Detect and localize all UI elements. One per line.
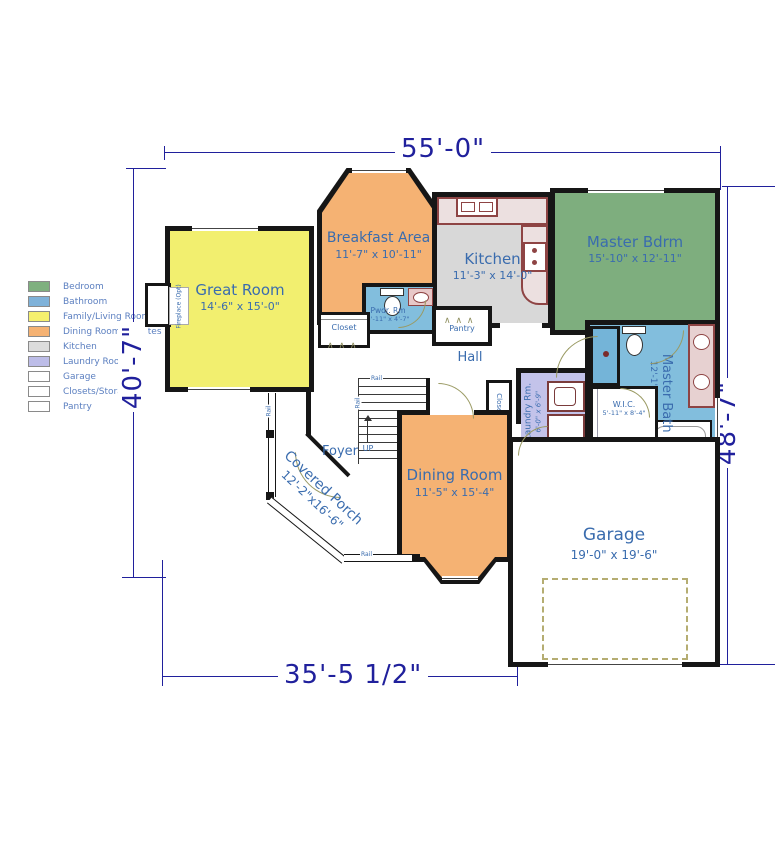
pantry: Pantry — [432, 306, 492, 346]
great-room-name: Great Room — [170, 281, 310, 299]
stairs-up-arrow — [367, 420, 368, 442]
opening — [500, 323, 542, 329]
stairs-up-arrowhead — [364, 415, 372, 421]
sink-basin — [693, 374, 710, 390]
sink-basin — [461, 202, 475, 212]
rail-label: Rail — [267, 404, 273, 417]
shower-head — [603, 351, 609, 357]
dim-tick — [162, 560, 163, 686]
foyer-label: Foyer — [308, 444, 372, 460]
legend-swatch — [28, 371, 50, 382]
breakfast-name: Breakfast Area — [317, 230, 440, 247]
legend-label: Bedroom — [63, 282, 104, 292]
porch-rail — [344, 554, 420, 562]
closet-rod-icon — [327, 333, 357, 352]
dining-name: Dining Room — [397, 466, 512, 484]
legend-swatch — [28, 311, 50, 322]
closet-hall: Closet — [318, 312, 370, 348]
toilet-icon — [622, 326, 646, 334]
toilet-icon — [626, 334, 643, 356]
kitchen-sink — [456, 197, 498, 217]
rail-label: Rail — [356, 396, 362, 409]
dim-tick — [720, 146, 721, 190]
legend-label: Family/Living Room — [63, 312, 150, 322]
master-bdrm-name: Master Bdrm — [550, 233, 720, 251]
window — [352, 168, 406, 173]
legend-swatch — [28, 341, 50, 352]
sink-basin — [693, 334, 710, 350]
shelf-line — [321, 319, 367, 320]
master-bdrm-dims: 15'-10" x 12'-11" — [550, 252, 720, 265]
pantry-label: Pantry — [436, 324, 488, 334]
dim-left-label: 40'-7" — [118, 322, 148, 412]
hall-label: Hall — [430, 350, 510, 366]
kitchen-name: Kitchen — [430, 250, 555, 268]
legend-swatch — [28, 281, 50, 292]
closet-label: Closet — [321, 323, 367, 333]
legend-swatch — [28, 296, 50, 307]
dim-tick — [126, 168, 166, 169]
toilet-icon — [380, 288, 404, 296]
legend-swatch — [28, 356, 50, 367]
window — [715, 398, 720, 442]
kitchen-dims: 11'-3" x 14'-0" — [430, 269, 555, 282]
legend-swatch — [28, 386, 50, 397]
window — [188, 387, 250, 392]
door-arc — [556, 336, 598, 378]
dim-tick — [122, 577, 166, 578]
window — [192, 226, 258, 231]
dim-tick — [164, 146, 165, 160]
fireplace — [145, 283, 171, 327]
wall-foyer — [306, 388, 311, 436]
legend-item: Bathroom — [28, 294, 162, 309]
washer-door — [554, 387, 576, 406]
legend-label: Garage — [63, 372, 96, 382]
legend-swatch — [28, 401, 50, 412]
garage-door-area — [542, 578, 688, 660]
window — [442, 576, 478, 580]
legend-label: Pantry — [63, 402, 92, 412]
rail-label: Rail — [370, 376, 383, 382]
window — [588, 188, 664, 193]
garage-door — [548, 662, 682, 667]
legend-label: Kitchen — [63, 342, 97, 352]
dim-top-label: 55'-0" — [395, 134, 491, 164]
legend-label: Bathroom — [63, 297, 107, 307]
sink-basin — [479, 202, 493, 212]
garage-name: Garage — [508, 525, 720, 545]
breakfast-dims: 11'-7" x 10'-11" — [317, 248, 440, 261]
dim-tick — [722, 186, 775, 187]
vanity-counter — [688, 324, 715, 408]
dining-dims: 11'-5" x 15'-4" — [397, 486, 512, 499]
legend-item: Bedroom — [28, 279, 162, 294]
porch-post — [412, 554, 420, 562]
legend-swatch — [28, 326, 50, 337]
door-arc — [438, 383, 474, 419]
great-room-dims: 14'-6" x 15'-0" — [170, 300, 310, 313]
dim-bottom-label: 35'-5 1/2" — [278, 660, 428, 690]
floor-plan: Bedroom Bathroom Family/Living Room Dini… — [0, 0, 781, 849]
garage-dims: 19'-0" x 19'-6" — [508, 548, 720, 562]
washer-icon — [547, 381, 585, 412]
